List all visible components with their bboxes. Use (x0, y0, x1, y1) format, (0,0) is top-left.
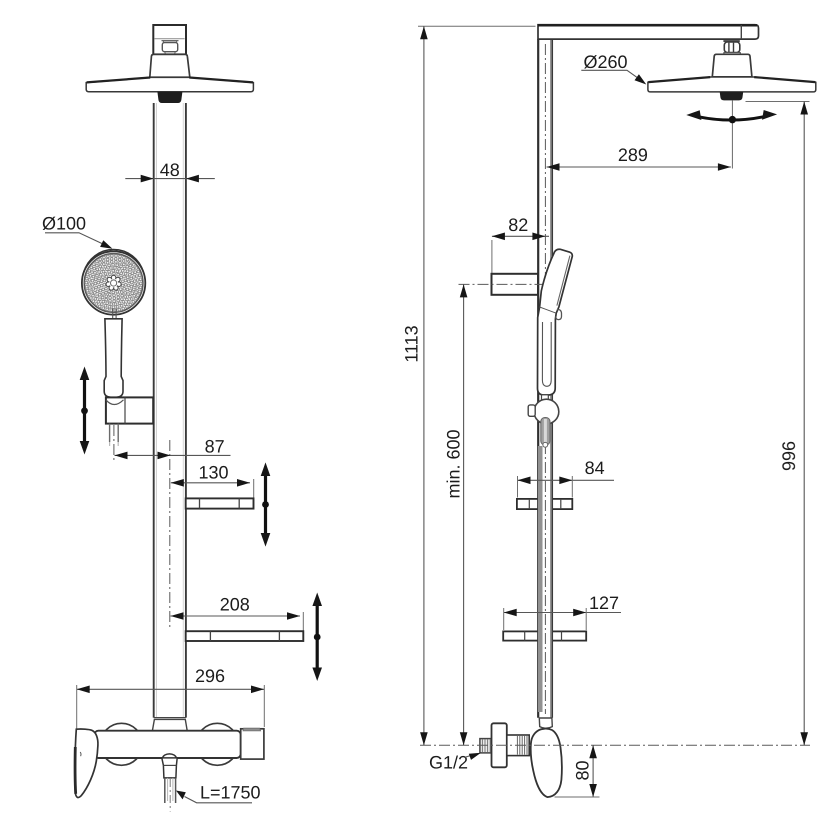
svg-text:Ø260: Ø260 (583, 52, 627, 72)
svg-text:289: 289 (618, 145, 648, 165)
svg-text:80: 80 (573, 760, 593, 780)
svg-text:1113: 1113 (402, 325, 422, 362)
svg-text:996: 996 (779, 441, 799, 471)
svg-text:87: 87 (205, 437, 225, 457)
svg-text:48: 48 (160, 160, 180, 180)
svg-text:84: 84 (585, 458, 605, 478)
svg-text:127: 127 (589, 593, 619, 613)
svg-text:296: 296 (195, 666, 225, 686)
svg-text:min. 600: min. 600 (444, 429, 464, 498)
svg-text:G1/2: G1/2 (429, 753, 468, 773)
svg-text:L=1750: L=1750 (200, 782, 261, 802)
svg-text:130: 130 (198, 462, 228, 482)
svg-text:208: 208 (220, 594, 250, 614)
svg-text:82: 82 (508, 215, 528, 235)
svg-text:Ø100: Ø100 (42, 214, 86, 234)
